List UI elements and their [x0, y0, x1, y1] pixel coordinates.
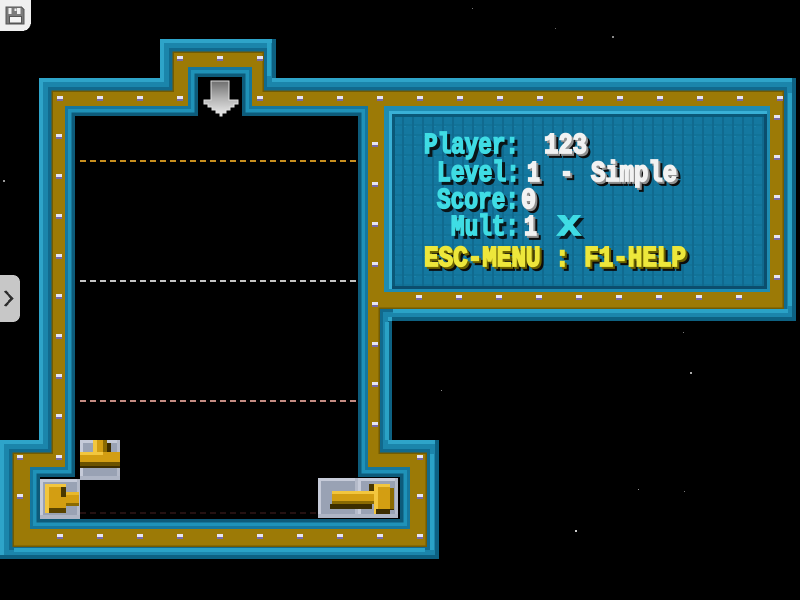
svg-text:ESC-MENU : F1-HELP: ESC-MENU : F1-HELP [424, 242, 686, 275]
svg-text:X: X [558, 211, 580, 244]
svg-text:1: 1 [524, 211, 537, 244]
svg-text:Mult:: Mult: [451, 211, 519, 244]
svg-text:Simple: Simple [591, 157, 677, 190]
svg-text:-: - [560, 157, 573, 190]
